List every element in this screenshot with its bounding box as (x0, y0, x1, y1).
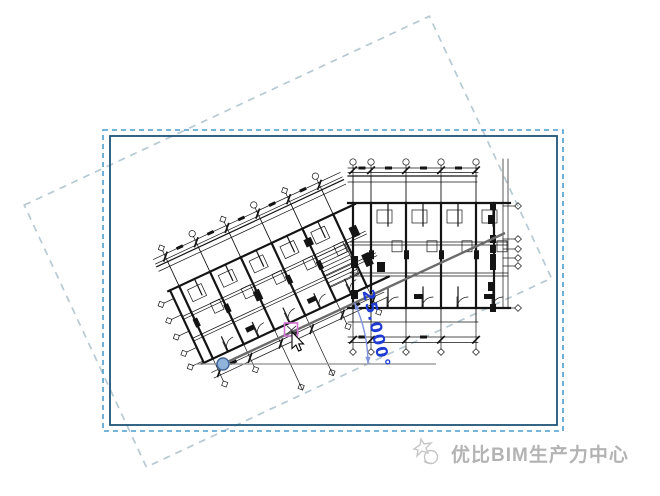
watermark-text: 优比BIM生产力中心 (451, 440, 629, 467)
watermark: 优比BIM生产力中心 (410, 437, 629, 469)
drawing-canvas: 25.000° 优比BIM生产力中心 (0, 0, 660, 496)
rotation-origin-icon[interactable] (217, 358, 229, 370)
sketch-star-logo-icon (410, 437, 446, 469)
